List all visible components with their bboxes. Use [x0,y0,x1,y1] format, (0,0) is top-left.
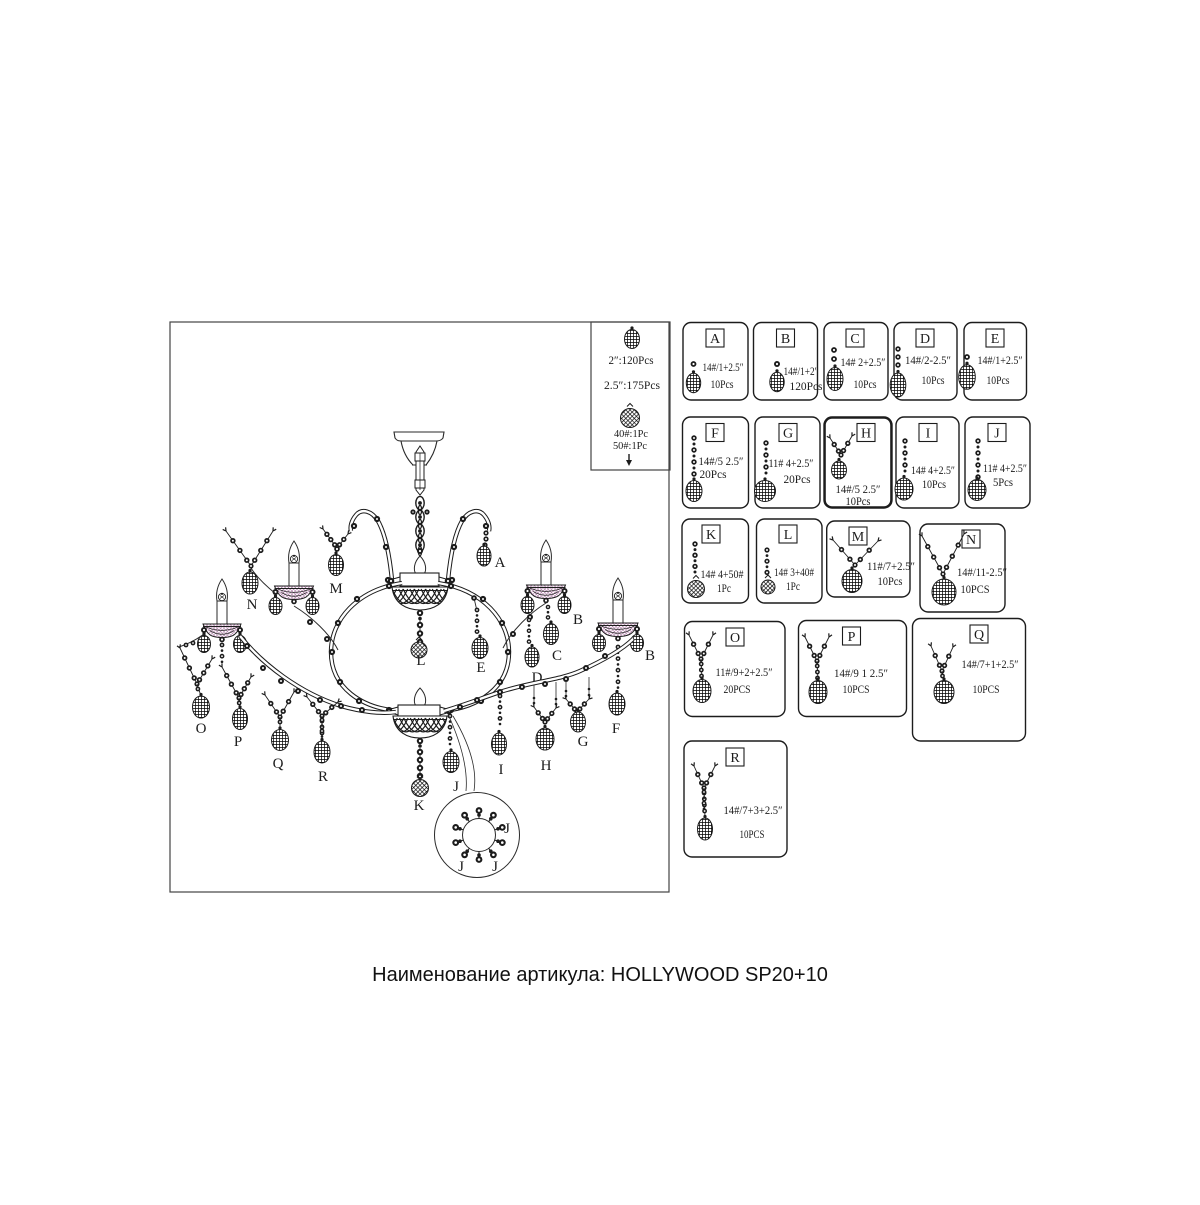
svg-text:B: B [573,612,583,628]
svg-text:O: O [730,631,740,646]
svg-text:14#/1+2.5″: 14#/1+2.5″ [978,355,1023,367]
svg-text:20Pcs: 20Pcs [700,469,728,481]
svg-text:50#:1Pc: 50#:1Pc [613,440,647,452]
svg-text:2″:120Pcs: 2″:120Pcs [609,355,654,367]
svg-text:10PCS: 10PCS [961,584,990,596]
svg-text:14#/5 2.5″: 14#/5 2.5″ [699,456,744,468]
svg-text:K: K [706,528,716,543]
svg-text:H: H [541,758,552,774]
svg-text:14#/1+2″: 14#/1+2″ [784,366,819,378]
svg-text:10Pcs: 10Pcs [878,576,903,588]
svg-text:14#/7+1+2.5″: 14#/7+1+2.5″ [962,659,1019,671]
svg-text:D: D [920,332,930,347]
svg-text:Q: Q [273,756,284,772]
svg-text:14#/1+2.5″: 14#/1+2.5″ [703,362,744,374]
svg-text:R: R [318,769,328,785]
svg-text:1Pc: 1Pc [717,583,731,595]
svg-text:14#/9 1 2.5″: 14#/9 1 2.5″ [834,668,888,680]
svg-text:14#/5 2.5″: 14#/5 2.5″ [836,484,881,496]
svg-text:F: F [612,721,620,737]
svg-text:M: M [852,530,865,545]
svg-text:P: P [848,630,856,645]
svg-text:J: J [453,779,459,795]
svg-text:E: E [991,332,1000,347]
svg-text:10PCS: 10PCS [843,684,870,696]
svg-text:K: K [414,798,425,814]
svg-text:2.5″:175Pcs: 2.5″:175Pcs [604,380,661,392]
svg-text:F: F [711,427,719,442]
svg-text:10Pcs: 10Pcs [987,375,1010,387]
svg-text:I: I [499,762,504,778]
svg-text:14#/7+3+2.5″: 14#/7+3+2.5″ [724,805,783,817]
svg-text:J: J [504,821,510,837]
svg-text:10Pcs: 10Pcs [711,379,734,391]
svg-text:C: C [850,332,859,347]
svg-text:14#/11-2.5″: 14#/11-2.5″ [957,567,1007,579]
svg-text:J: J [492,859,498,875]
svg-text:L: L [784,528,793,543]
svg-text:11#/9+2+2.5″: 11#/9+2+2.5″ [716,667,773,679]
svg-text:10PCS: 10PCS [973,684,1000,696]
svg-text:Q: Q [974,628,984,643]
svg-text:N: N [247,597,258,613]
svg-text:C: C [552,648,562,664]
svg-text:5Pcs: 5Pcs [993,477,1013,489]
svg-text:40#:1Pc: 40#:1Pc [614,428,648,440]
svg-text:E: E [476,660,485,676]
svg-text:J: J [994,427,1000,442]
svg-text:A: A [495,555,506,571]
svg-text:M: M [329,581,342,597]
svg-text:20PCS: 20PCS [724,684,751,696]
svg-text:10Pcs: 10Pcs [922,479,946,491]
svg-text:11# 4+2.5″: 11# 4+2.5″ [983,463,1027,475]
svg-text:120Pcs: 120Pcs [790,381,824,393]
svg-text:O: O [196,721,207,737]
svg-text:14#/2-2.5″: 14#/2-2.5″ [905,355,951,367]
svg-text:14# 4+50#: 14# 4+50# [701,569,744,581]
svg-text:11# 4+2.5″: 11# 4+2.5″ [769,458,814,470]
svg-text:10PCS: 10PCS [740,829,765,841]
svg-text:G: G [578,734,589,750]
svg-text:B: B [781,332,790,347]
svg-text:J: J [458,859,464,875]
svg-text:L: L [416,653,425,669]
svg-text:G: G [783,427,793,442]
svg-text:20Pcs: 20Pcs [784,474,812,486]
svg-text:11#/7+2.5″: 11#/7+2.5″ [867,561,915,573]
svg-text:10Pcs: 10Pcs [922,375,945,387]
svg-text:N: N [966,533,976,548]
svg-text:14# 3+40#: 14# 3+40# [774,567,814,579]
svg-text:I: I [926,427,931,442]
svg-text:R: R [730,751,740,766]
svg-text:H: H [861,427,871,442]
svg-text:A: A [710,332,721,347]
svg-text:10Pcs: 10Pcs [854,379,877,391]
svg-text:14# 2+2.5″: 14# 2+2.5″ [841,357,886,369]
svg-text:P: P [234,734,242,750]
svg-text:1Pc: 1Pc [786,581,800,593]
svg-text:B: B [645,648,655,664]
svg-text:14# 4+2.5″: 14# 4+2.5″ [911,465,955,477]
